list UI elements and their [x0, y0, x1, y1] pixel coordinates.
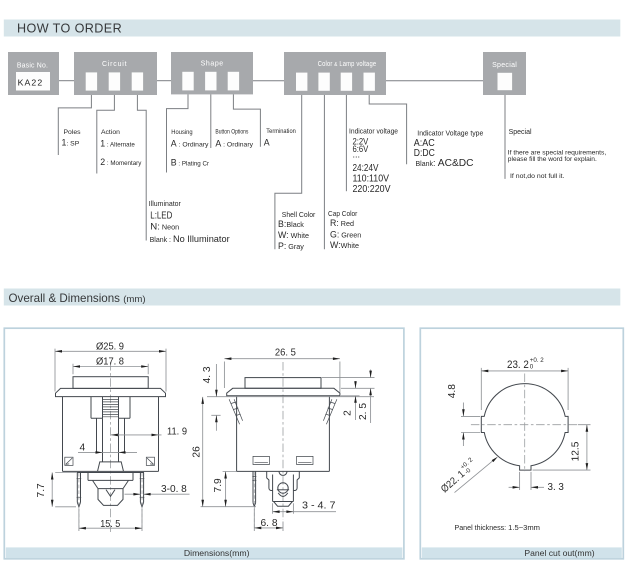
svg-text:Special: Special	[492, 62, 517, 69]
svg-text:Panel cut out(mm): Panel cut out(mm)	[524, 548, 594, 558]
svg-text:4.8: 4.8	[447, 384, 458, 398]
svg-text:W: White: W: White	[278, 230, 309, 240]
svg-text:220:220V: 220:220V	[353, 184, 391, 195]
svg-text:L:LED: L:LED	[150, 210, 172, 221]
svg-text:Ø25. 9: Ø25. 9	[96, 341, 124, 352]
svg-text:3 - 4. 7: 3 - 4. 7	[302, 500, 336, 511]
svg-text:Housing: Housing	[171, 129, 192, 136]
svg-text:G: Green: G: Green	[330, 229, 361, 239]
svg-text:Poles: Poles	[64, 129, 82, 136]
svg-text:R: Red: R: Red	[330, 218, 354, 228]
svg-text:26: 26	[192, 446, 203, 458]
svg-text:7.7: 7.7	[36, 483, 47, 497]
svg-text:B:Black: B:Black	[278, 219, 304, 229]
svg-text:2. 5: 2. 5	[358, 403, 369, 420]
svg-text:Color & Lamp voltage: Color & Lamp voltage	[318, 61, 377, 68]
svg-text:Cap Color: Cap Color	[328, 209, 358, 218]
svg-text:HOW TO ORDER: HOW TO ORDER	[17, 22, 122, 36]
svg-text:Illuminator: Illuminator	[149, 199, 182, 208]
svg-text:0: 0	[530, 363, 534, 370]
svg-text:2: 2	[343, 410, 354, 416]
svg-text:12.5: 12.5	[570, 441, 581, 461]
svg-text:If not,do not full it.: If not,do not full it.	[510, 173, 565, 180]
svg-text:6. 8: 6. 8	[261, 518, 278, 529]
svg-text:4: 4	[79, 442, 85, 453]
svg-text:D:DC: D:DC	[414, 148, 435, 159]
svg-text:4. 3: 4. 3	[202, 366, 213, 383]
svg-text:Overall & Dimensions (mm): Overall & Dimensions (mm)	[9, 292, 146, 305]
svg-text:KA22: KA22	[18, 78, 44, 88]
svg-text:Special: Special	[509, 129, 532, 136]
svg-text:Button Options: Button Options	[215, 129, 248, 136]
svg-text:Indicator voltage: Indicator voltage	[349, 127, 398, 136]
svg-text:26. 5: 26. 5	[275, 348, 296, 359]
svg-text:Circuit: Circuit	[102, 61, 127, 68]
svg-text:3-0. 8: 3-0. 8	[161, 484, 187, 495]
svg-text:Panel thickness: 1.5~3mm: Panel thickness: 1.5~3mm	[455, 523, 541, 532]
svg-text:Shape: Shape	[201, 61, 224, 68]
svg-text:23. 2: 23. 2	[507, 359, 529, 371]
svg-text:Basic No.: Basic No.	[17, 63, 48, 70]
svg-text:W:White: W:White	[330, 240, 359, 250]
svg-text:Indicator Voltage type: Indicator Voltage type	[417, 131, 483, 138]
svg-text:...: ...	[353, 149, 361, 159]
svg-text:7.9: 7.9	[213, 478, 224, 492]
svg-text:3. 3: 3. 3	[548, 482, 565, 493]
svg-text:Ø17. 8: Ø17. 8	[96, 357, 124, 368]
svg-text:15. 5: 15. 5	[100, 519, 120, 530]
svg-text:Termination: Termination	[266, 128, 296, 135]
svg-text:N: Neon: N: Neon	[150, 222, 179, 233]
svg-text:Shell Color: Shell Color	[282, 210, 316, 219]
svg-text:11. 9: 11. 9	[167, 426, 187, 437]
svg-text:please fill the word for expla: please fill the word for explain.	[508, 156, 597, 163]
svg-text:A: A	[264, 138, 270, 148]
svg-text:24:24V: 24:24V	[353, 163, 379, 174]
svg-text:Action: Action	[101, 129, 120, 136]
svg-text:P: Gray: P: Gray	[278, 241, 304, 251]
svg-text:Dimensions(mm): Dimensions(mm)	[184, 548, 250, 558]
